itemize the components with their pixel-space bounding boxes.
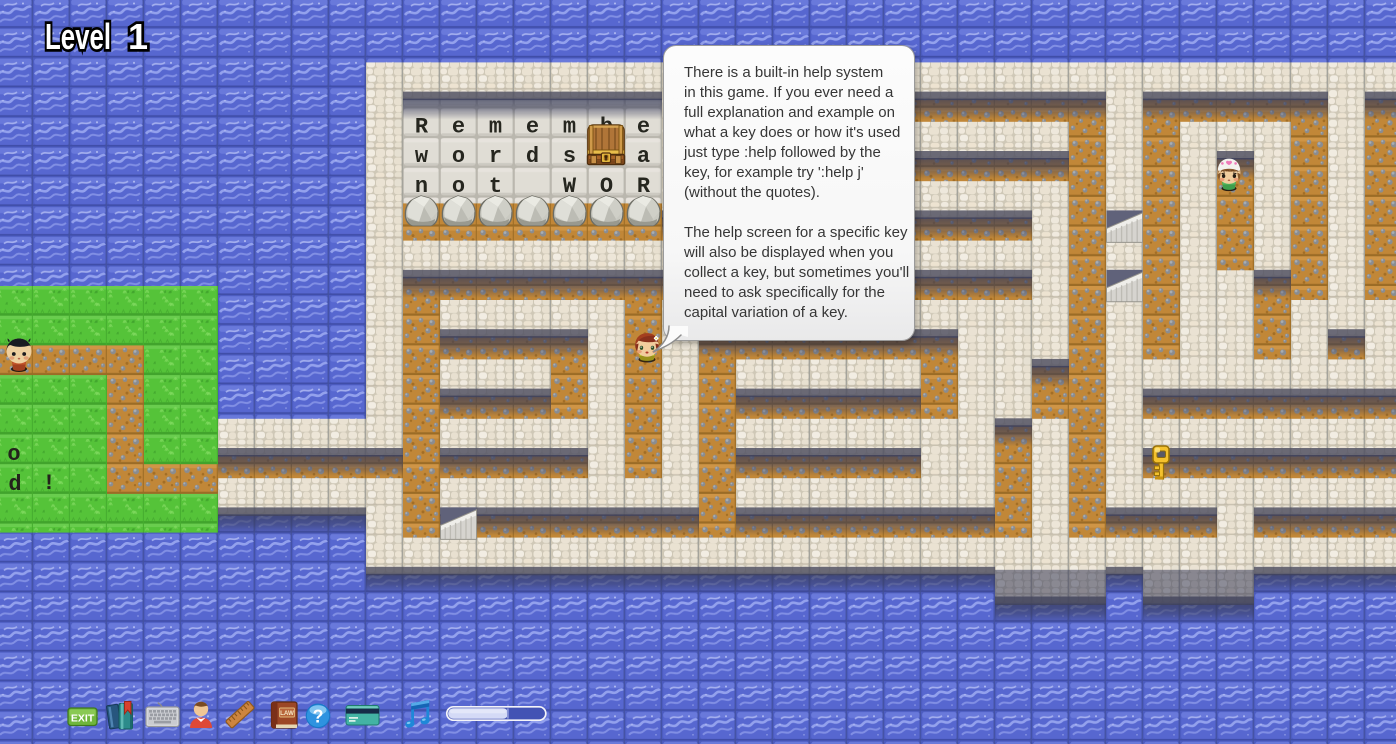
svg-text:r: r <box>489 144 502 169</box>
svg-text:e: e <box>637 115 650 140</box>
svg-text:!: ! <box>42 471 55 496</box>
svg-text:t: t <box>489 174 502 199</box>
svg-text:R: R <box>637 174 651 199</box>
svg-text:O: O <box>600 174 613 199</box>
svg-text:LAW: LAW <box>280 710 294 717</box>
svg-text:EXIT: EXIT <box>71 713 95 725</box>
svg-text:o: o <box>452 174 465 199</box>
svg-text:d: d <box>8 472 21 497</box>
svg-text:?: ? <box>313 707 324 727</box>
svg-text:m: m <box>563 115 576 140</box>
svg-text:e: e <box>452 115 465 140</box>
svg-text:w: w <box>415 144 429 169</box>
svg-text:o: o <box>452 144 465 169</box>
svg-text:s: s <box>563 144 576 169</box>
svg-text:o: o <box>7 442 20 467</box>
svg-text:d: d <box>526 144 539 169</box>
svg-text:m: m <box>489 115 502 140</box>
svg-text:Level: Level <box>45 16 111 57</box>
svg-text:R: R <box>415 115 429 140</box>
svg-text:1: 1 <box>128 16 148 57</box>
svg-text:n: n <box>415 174 428 199</box>
svg-text:e: e <box>526 115 539 140</box>
svg-text:W: W <box>563 174 577 199</box>
svg-text:a: a <box>637 144 650 169</box>
